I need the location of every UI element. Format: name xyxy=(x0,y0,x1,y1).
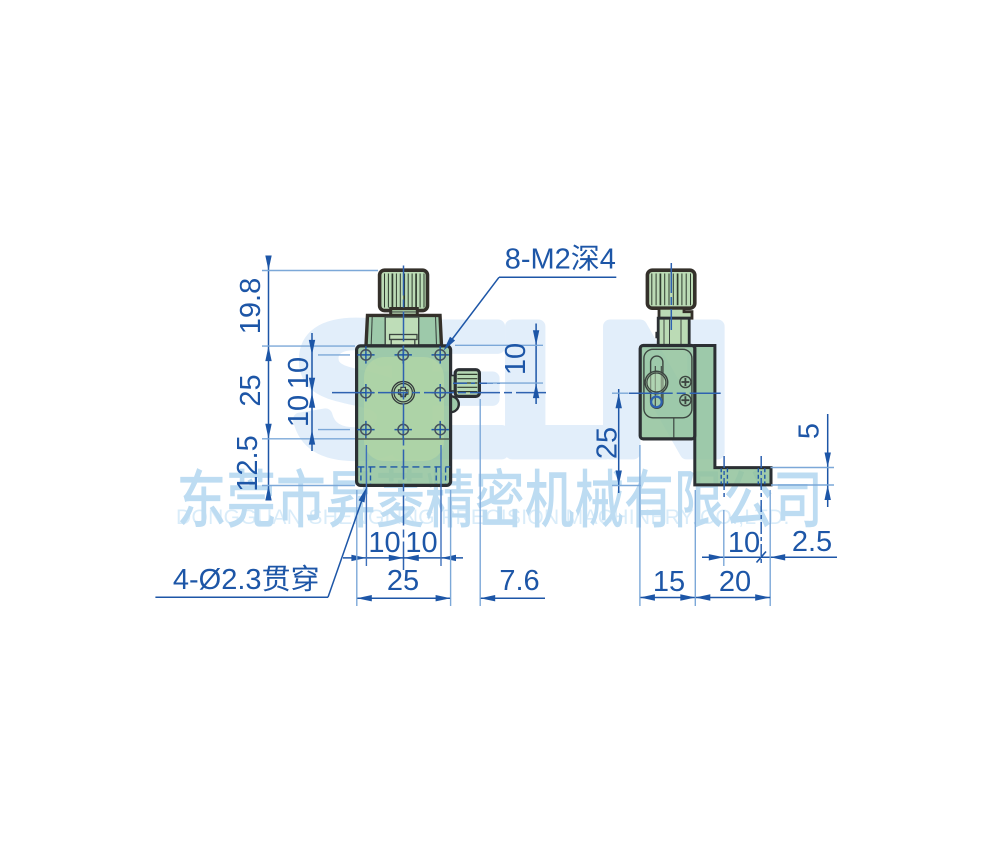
svg-text:4: 4 xyxy=(600,244,616,276)
svg-text:10: 10 xyxy=(283,395,315,427)
svg-text:10: 10 xyxy=(368,527,400,559)
svg-text:25: 25 xyxy=(592,427,624,459)
svg-text:25: 25 xyxy=(387,565,419,597)
svg-text:19.8: 19.8 xyxy=(235,278,267,334)
svg-text:15: 15 xyxy=(653,566,685,598)
svg-text:10: 10 xyxy=(500,343,532,375)
svg-text:5: 5 xyxy=(794,423,826,439)
svg-text:7.6: 7.6 xyxy=(499,565,539,597)
svg-text:10: 10 xyxy=(728,527,760,559)
svg-text:10: 10 xyxy=(405,527,437,559)
svg-text:8-M2: 8-M2 xyxy=(505,244,571,276)
svg-text:10: 10 xyxy=(283,357,315,389)
svg-text:12.5: 12.5 xyxy=(232,435,264,491)
svg-text:4-Ø2.3: 4-Ø2.3 xyxy=(173,564,262,596)
svg-text:25: 25 xyxy=(235,374,267,406)
svg-text:2.5: 2.5 xyxy=(792,526,832,558)
svg-text:L: L xyxy=(500,286,612,491)
svg-text:20: 20 xyxy=(719,566,751,598)
